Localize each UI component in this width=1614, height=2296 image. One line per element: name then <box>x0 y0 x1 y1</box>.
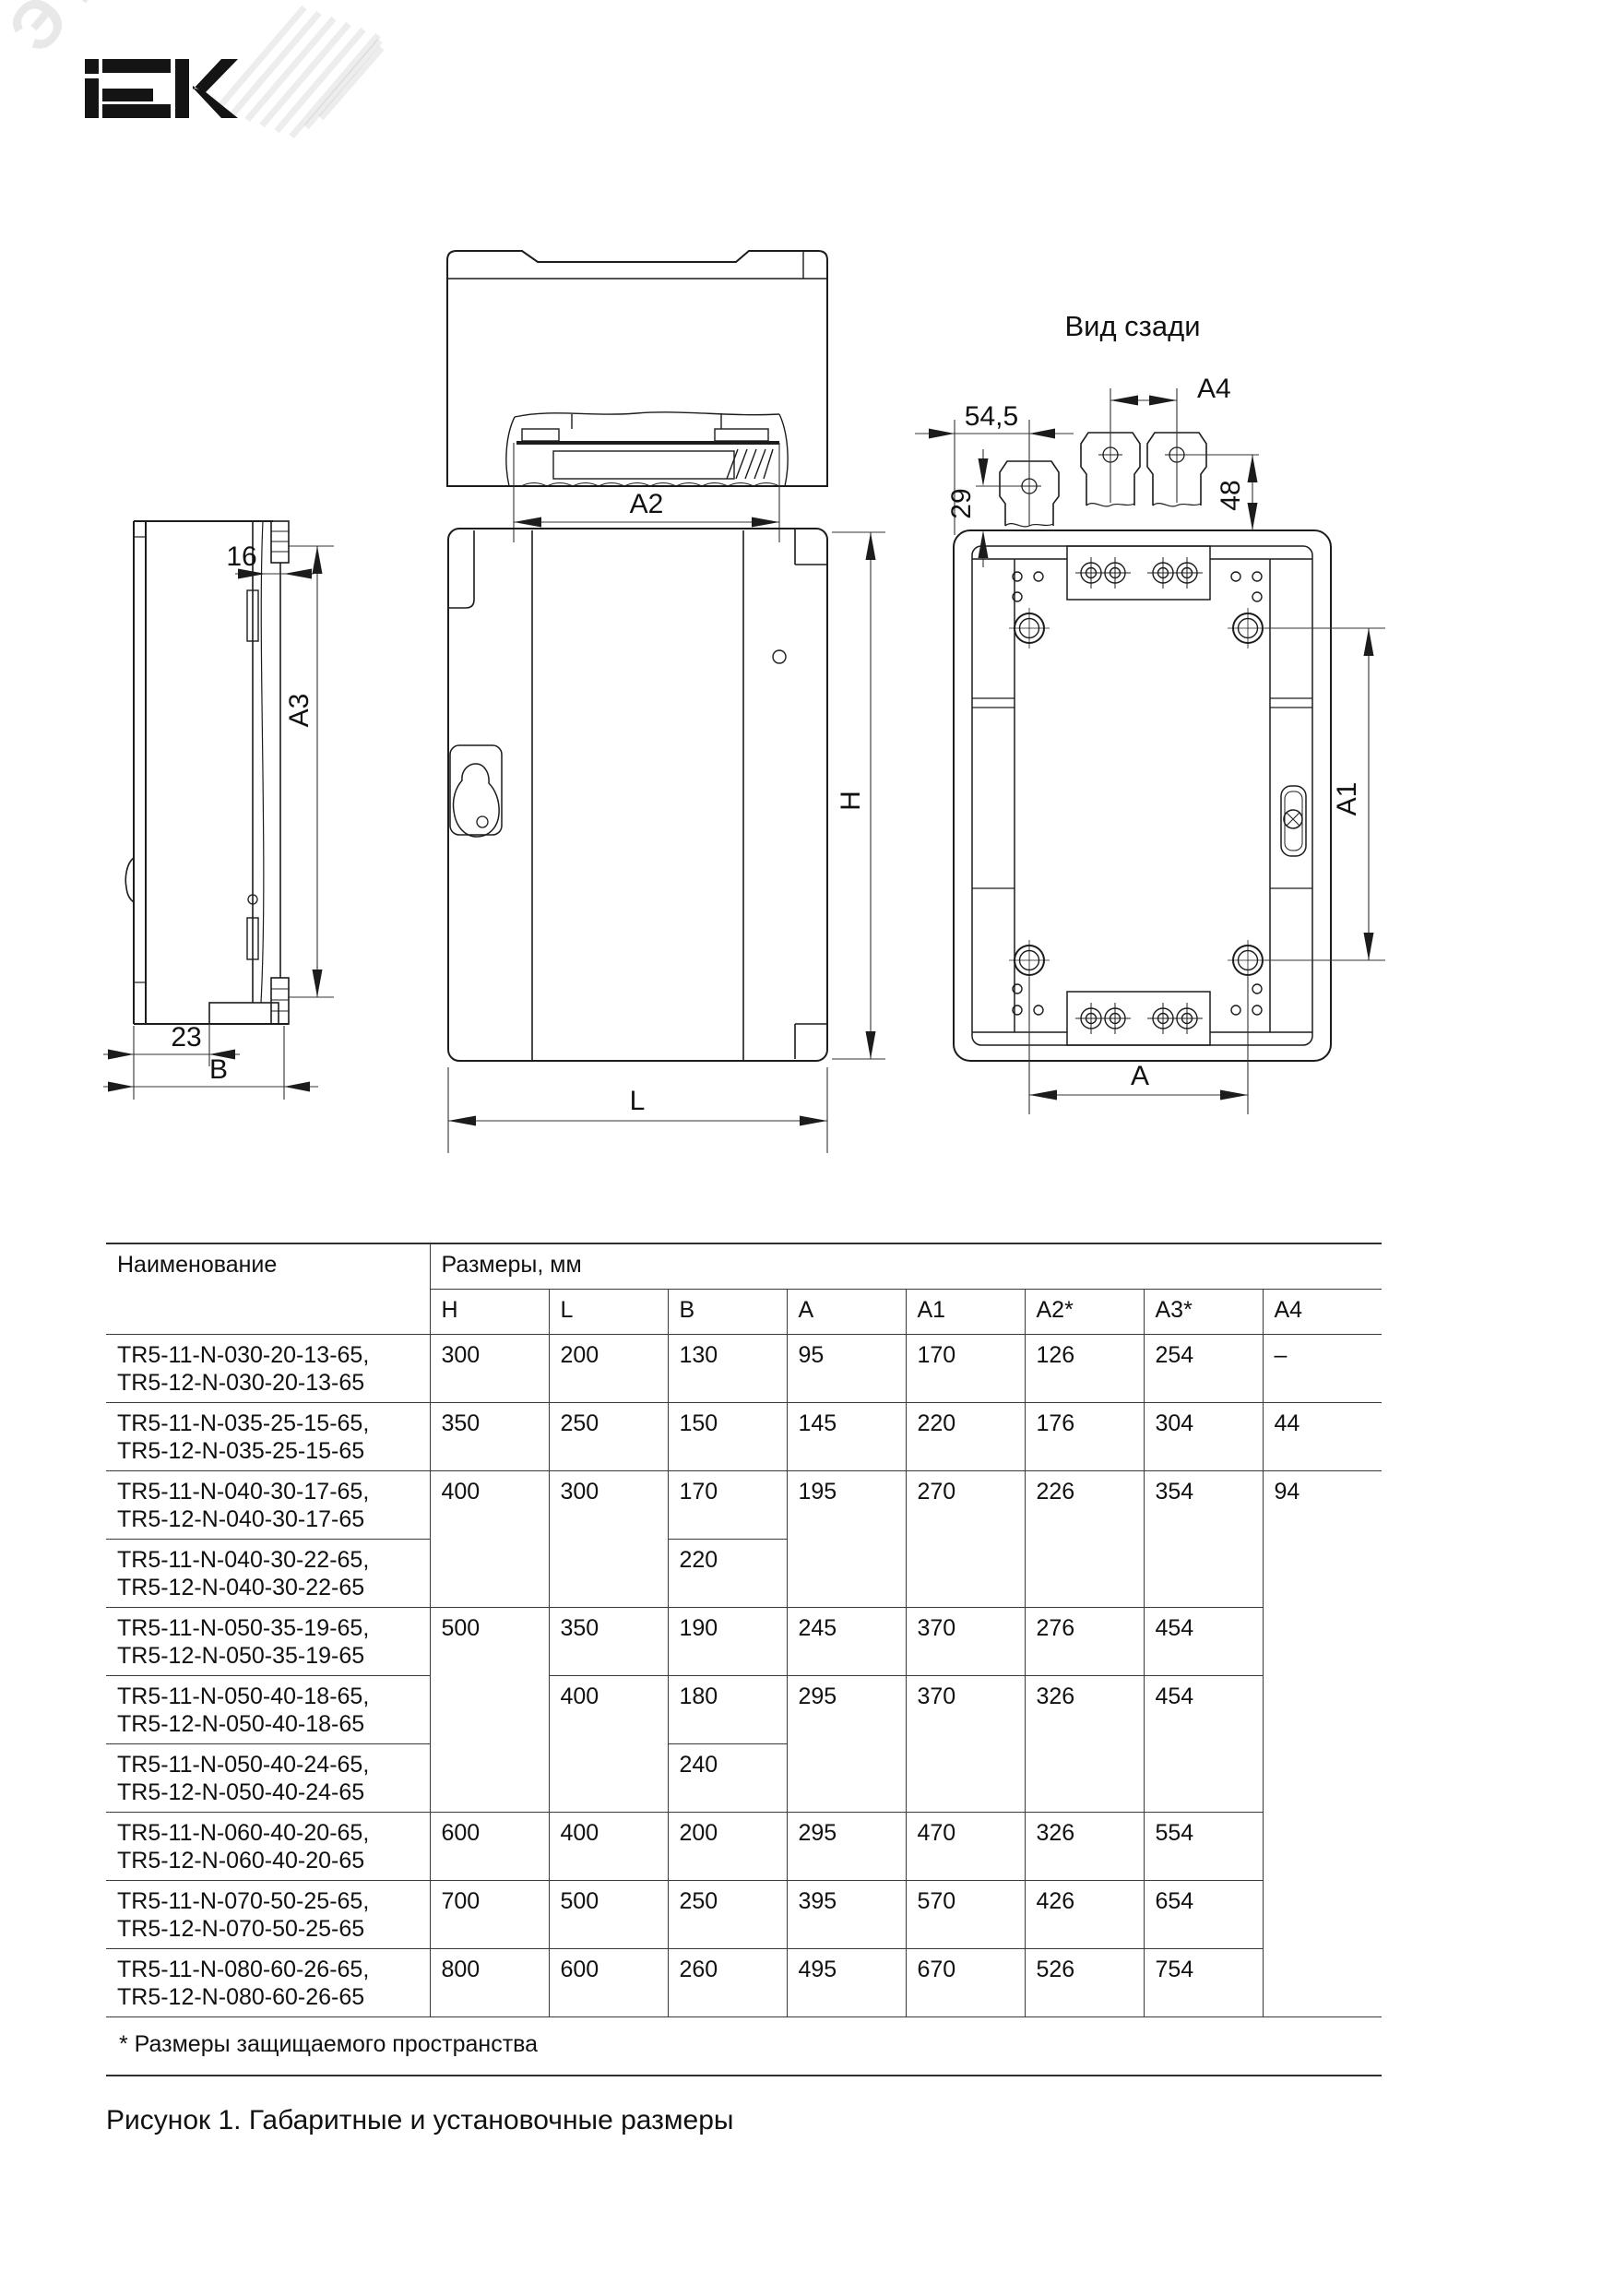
cell-a2: 126 <box>1025 1334 1144 1402</box>
col-header-a2: A2* <box>1025 1289 1144 1334</box>
table-row: TR5-11-N-040-30-17-65,TR5-12-N-040-30-17… <box>106 1470 1382 1539</box>
cell-a3: 754 <box>1144 1948 1263 2016</box>
cell-a1: 220 <box>906 1402 1025 1470</box>
cell-l: 400 <box>549 1675 668 1812</box>
datasheet-page: { "brand": { "logo_text": "IEK", "waterm… <box>0 0 1614 2296</box>
model-line-1: TR5-11-N-060-40-20-65, <box>117 1819 424 1847</box>
sizes-group-header: Размеры, мм <box>430 1243 1382 1289</box>
cell-a1: 170 <box>906 1334 1025 1402</box>
cell-a: 145 <box>787 1402 906 1470</box>
cell-h: 300 <box>430 1334 549 1402</box>
cell-a1: 370 <box>906 1675 1025 1812</box>
cell-a3: 354 <box>1144 1470 1263 1607</box>
back-view-drawing <box>954 433 1331 1061</box>
cell-a: 95 <box>787 1334 906 1402</box>
col-header-h: H <box>430 1289 549 1334</box>
col-header-l: L <box>549 1289 668 1334</box>
cell-l: 600 <box>549 1948 668 2016</box>
cell-a: 495 <box>787 1948 906 2016</box>
model-line-1: TR5-11-N-050-40-24-65, <box>117 1751 424 1779</box>
cell-a3: 454 <box>1144 1607 1263 1675</box>
dim-h: H <box>832 532 885 1059</box>
cell-h: 400 <box>430 1470 549 1607</box>
cell-a3: 654 <box>1144 1880 1263 1948</box>
model-name: TR5-11-N-040-30-17-65,TR5-12-N-040-30-17… <box>106 1470 430 1539</box>
dim-a4: A4 <box>1110 374 1231 503</box>
table-row: TR5-11-N-050-40-18-65,TR5-12-N-050-40-18… <box>106 1675 1382 1743</box>
cell-b: 200 <box>668 1812 787 1880</box>
cell-a2: 526 <box>1025 1948 1144 2016</box>
model-line-1: TR5-11-N-040-30-17-65, <box>117 1478 424 1505</box>
cell-a3: 304 <box>1144 1402 1263 1470</box>
figure-caption: Рисунок 1. Габаритные и установочные раз… <box>106 2105 733 2136</box>
dimensions-table: Наименование Размеры, мм H L B A A1 A2* … <box>106 1243 1382 2076</box>
cell-h: 500 <box>430 1607 549 1812</box>
cell-a4: 94 <box>1263 1470 1382 2016</box>
svg-text:54,5: 54,5 <box>965 401 1018 432</box>
top-view-drawing <box>447 251 827 486</box>
model-line-1: TR5-11-N-040-30-22-65, <box>117 1546 424 1574</box>
watermark-hatch <box>218 7 382 137</box>
model-line-2: TR5-12-N-040-30-17-65 <box>117 1505 424 1533</box>
model-line-1: TR5-11-N-070-50-25-65, <box>117 1887 424 1915</box>
table-row: TR5-11-N-080-60-26-65,TR5-12-N-080-60-26… <box>106 1948 1382 2016</box>
table-row: TR5-11-N-035-25-15-65,TR5-12-N-035-25-15… <box>106 1402 1382 1470</box>
dim-a1: A1 <box>1264 628 1385 960</box>
cell-a4: – <box>1263 1334 1382 1402</box>
col-header-a4: A4 <box>1263 1289 1382 1334</box>
dim-29: 29 <box>946 449 1020 567</box>
svg-text:A1: A1 <box>1332 782 1362 816</box>
model-line-1: TR5-11-N-050-35-19-65, <box>117 1614 424 1642</box>
name-column-header: Наименование <box>106 1243 430 1334</box>
cell-a2: 426 <box>1025 1880 1144 1948</box>
cell-a2: 276 <box>1025 1607 1144 1675</box>
cell-l: 200 <box>549 1334 668 1402</box>
cell-b: 260 <box>668 1948 787 2016</box>
cell-b: 150 <box>668 1402 787 1470</box>
svg-text:A3: A3 <box>284 694 314 728</box>
cell-l: 400 <box>549 1812 668 1880</box>
cell-a1: 570 <box>906 1880 1025 1948</box>
table-footnote: * Размеры защищаемого пространства <box>106 2016 1382 2076</box>
cell-a2: 176 <box>1025 1402 1144 1470</box>
dim-b: B <box>103 1026 318 1100</box>
cell-b: 190 <box>668 1607 787 1675</box>
svg-text:A4: A4 <box>1197 374 1231 404</box>
model-name: TR5-11-N-050-40-18-65,TR5-12-N-050-40-18… <box>106 1675 430 1743</box>
model-line-1: TR5-11-N-050-40-18-65, <box>117 1683 424 1710</box>
table-row: TR5-11-N-030-20-13-65,TR5-12-N-030-20-13… <box>106 1334 1382 1402</box>
cell-l: 500 <box>549 1880 668 1948</box>
svg-text:29: 29 <box>946 488 977 518</box>
model-line-2: TR5-12-N-050-40-24-65 <box>117 1779 424 1806</box>
cell-a3: 554 <box>1144 1812 1263 1880</box>
cell-a1: 370 <box>906 1607 1025 1675</box>
table-row: TR5-11-N-070-50-25-65,TR5-12-N-070-50-25… <box>106 1880 1382 1948</box>
cell-a1: 470 <box>906 1812 1025 1880</box>
cell-b: 180 <box>668 1675 787 1743</box>
model-line-2: TR5-12-N-040-30-22-65 <box>117 1574 424 1601</box>
model-name: TR5-11-N-060-40-20-65,TR5-12-N-060-40-20… <box>106 1812 430 1880</box>
cell-b: 170 <box>668 1470 787 1539</box>
cell-a: 395 <box>787 1880 906 1948</box>
model-line-2: TR5-12-N-030-20-13-65 <box>117 1369 424 1397</box>
col-header-a3: A3* <box>1144 1289 1263 1334</box>
mounting-tabs <box>1000 433 1206 527</box>
model-name: TR5-11-N-035-25-15-65,TR5-12-N-035-25-15… <box>106 1402 430 1470</box>
col-header-a1: A1 <box>906 1289 1025 1334</box>
model-line-2: TR5-12-N-060-40-20-65 <box>117 1847 424 1874</box>
dim-l: L <box>448 1067 827 1153</box>
cell-b: 220 <box>668 1539 787 1607</box>
model-name: TR5-11-N-030-20-13-65,TR5-12-N-030-20-13… <box>106 1334 430 1402</box>
model-line-2: TR5-12-N-050-40-18-65 <box>117 1710 424 1738</box>
svg-text:23: 23 <box>171 1022 201 1053</box>
dim-48: 48 <box>1184 455 1259 530</box>
back-view-title: Вид сзади <box>1064 310 1200 342</box>
iek-logo <box>85 28 238 118</box>
model-line-2: TR5-12-N-035-25-15-65 <box>117 1437 424 1465</box>
table-header-row: Наименование Размеры, мм <box>106 1243 1382 1289</box>
dim-a3: A3 <box>284 546 334 997</box>
cell-l: 250 <box>549 1402 668 1470</box>
cell-a: 295 <box>787 1812 906 1880</box>
model-line-2: TR5-12-N-070-50-25-65 <box>117 1915 424 1943</box>
model-line-1: TR5-11-N-080-60-26-65, <box>117 1956 424 1983</box>
model-name: TR5-11-N-050-35-19-65,TR5-12-N-050-35-19… <box>106 1607 430 1675</box>
table-footnote-row: * Размеры защищаемого пространства <box>106 2016 1382 2076</box>
svg-text:B: B <box>209 1054 228 1085</box>
table-row: TR5-11-N-060-40-20-65,TR5-12-N-060-40-20… <box>106 1812 1382 1880</box>
svg-text:A2: A2 <box>630 489 664 519</box>
dim-54-5: 54,5 <box>915 401 1074 535</box>
lock-detail <box>1281 786 1306 856</box>
model-line-2: TR5-12-N-080-60-26-65 <box>117 1983 424 2011</box>
cell-h: 600 <box>430 1812 549 1880</box>
cell-l: 300 <box>549 1470 668 1607</box>
cell-h: 800 <box>430 1948 549 2016</box>
cell-a: 245 <box>787 1607 906 1675</box>
model-line-1: TR5-11-N-035-25-15-65, <box>117 1410 424 1437</box>
cell-a2: 326 <box>1025 1675 1144 1812</box>
small-holes <box>1013 572 1262 1015</box>
col-header-b: B <box>668 1289 787 1334</box>
model-line-2: TR5-12-N-050-35-19-65 <box>117 1642 424 1670</box>
mounting-holes <box>1009 608 1268 981</box>
cell-a3: 454 <box>1144 1675 1263 1812</box>
cell-h: 350 <box>430 1402 549 1470</box>
svg-text:16: 16 <box>226 541 256 572</box>
svg-text:H: H <box>836 791 866 811</box>
model-name: TR5-11-N-040-30-22-65,TR5-12-N-040-30-22… <box>106 1539 430 1607</box>
cell-a4: 44 <box>1263 1402 1382 1470</box>
cell-b: 240 <box>668 1743 787 1812</box>
technical-drawing: A2 Вид сзади 16 A3 <box>0 0 1614 1181</box>
cell-h: 700 <box>430 1880 549 1948</box>
cell-a: 195 <box>787 1470 906 1607</box>
model-name: TR5-11-N-080-60-26-65,TR5-12-N-080-60-26… <box>106 1948 430 2016</box>
cell-a: 295 <box>787 1675 906 1812</box>
model-line-1: TR5-11-N-030-20-13-65, <box>117 1341 424 1369</box>
cell-b: 250 <box>668 1880 787 1948</box>
cell-a1: 270 <box>906 1470 1025 1607</box>
cell-a2: 326 <box>1025 1812 1144 1880</box>
model-name: TR5-11-N-070-50-25-65,TR5-12-N-070-50-25… <box>106 1880 430 1948</box>
cell-a3: 254 <box>1144 1334 1263 1402</box>
dim-16: 16 <box>226 541 314 579</box>
model-name: TR5-11-N-050-40-24-65,TR5-12-N-050-40-24… <box>106 1743 430 1812</box>
cable-knockouts <box>1075 557 1203 1034</box>
front-view-drawing <box>448 529 827 1061</box>
svg-text:L: L <box>630 1086 646 1116</box>
svg-text:A: A <box>1131 1061 1149 1091</box>
table-row: TR5-11-N-050-35-19-65,TR5-12-N-050-35-19… <box>106 1607 1382 1675</box>
cell-a1: 670 <box>906 1948 1025 2016</box>
side-view-drawing <box>125 521 289 1024</box>
cell-a2: 226 <box>1025 1470 1144 1607</box>
cell-b: 130 <box>668 1334 787 1402</box>
col-header-a: A <box>787 1289 906 1334</box>
svg-text:48: 48 <box>1216 480 1246 510</box>
cell-l: 350 <box>549 1607 668 1675</box>
